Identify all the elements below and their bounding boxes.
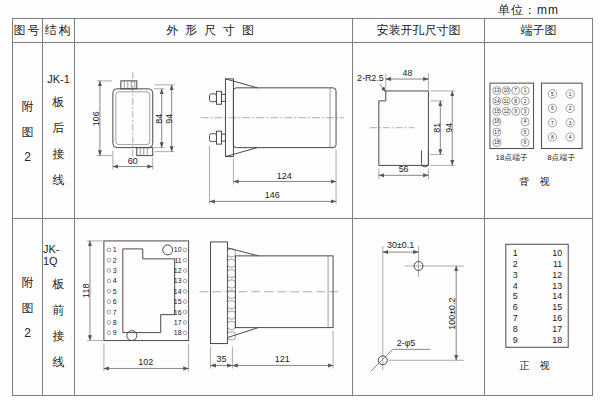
cutout-outline [370, 91, 429, 167]
dim-depth-total: 146 [265, 190, 280, 200]
pin-number: 1 [113, 247, 117, 254]
jk1q-mounting-hole-drawing: 30±0.1 100±0.2 2-φ5 [353, 219, 484, 394]
figure-cell-jk1q: 附 图 2 [13, 219, 43, 395]
pin-number: 11 [504, 99, 509, 104]
header-structure: 结构 [43, 19, 75, 43]
jk1-outline-drawing: 106 84 94 [75, 43, 352, 218]
bottom-hole: 2-φ5 [371, 339, 431, 372]
jk1-side-view [201, 79, 344, 157]
pin-number: 12 [504, 109, 510, 114]
top-hole [405, 247, 465, 278]
pin-number: 16 [174, 309, 182, 316]
dim-124: 124 [233, 150, 336, 185]
pin-number: 17 [552, 324, 562, 334]
dim-corner-radius: 2-R2.5 [357, 73, 386, 92]
pin-number: 6 [513, 303, 518, 313]
pin-number: 7 [113, 309, 117, 316]
pin-number: 7 [514, 88, 517, 93]
pin-number: 7 [551, 121, 554, 126]
structure-char: 后 [53, 120, 65, 137]
pin-number: 17 [494, 130, 500, 135]
dim-height-outer: 94 [164, 114, 174, 124]
dim-bottom-width: 56 [399, 164, 409, 174]
pin-number: 13 [494, 88, 500, 93]
view-label-front: 正 视 [519, 360, 553, 371]
structure-cell-jk1: JK-1 板 后 接 线 [43, 43, 75, 219]
dim-flange-depth: 35 [216, 355, 226, 365]
dim-height-total: 106 [91, 111, 101, 126]
dim-35: 35 [211, 347, 233, 369]
terminal-pin: 7 8 9 [512, 87, 520, 116]
dim-48: 48 [386, 68, 429, 90]
header-figure-number: 图号 [13, 19, 43, 43]
mounting-cell-jk1q: 30±0.1 100±0.2 2-φ5 [353, 219, 485, 395]
screw-terminal [210, 91, 226, 104]
pin-number: 4 [513, 281, 518, 291]
dim-height: 94 [444, 123, 454, 133]
pin-number: 12 [174, 267, 182, 274]
dim-146: 146 [210, 146, 337, 205]
pin-number: 3 [113, 267, 117, 274]
pin-number: 3 [569, 121, 572, 126]
header-terminal-diagram: 端子图 [485, 19, 593, 43]
figure-char: 2 [24, 150, 31, 164]
pin-number: 4 [113, 278, 117, 285]
dim-106: 106 [91, 81, 112, 156]
pin-number: 5 [524, 130, 527, 135]
structure-char: 板 [53, 276, 65, 293]
terminal-block-18: 13 14 15 16 17 18 10 11 12 [490, 83, 534, 148]
jk1-front-view [113, 72, 153, 164]
pin-number: 1 [524, 88, 527, 93]
pin-number: 2 [524, 99, 527, 104]
pin-number: 8 [514, 99, 517, 104]
pin-number: 2 [569, 106, 572, 111]
dim-depth-body: 124 [277, 171, 292, 181]
structure-char: 接 [53, 328, 65, 345]
dim-body-depth: 121 [275, 355, 290, 365]
view-label-back: 背 视 [519, 176, 553, 187]
dim-102: 102 [104, 344, 189, 372]
label-8-point: 8点端子 [547, 153, 575, 162]
pin-number: 14 [494, 99, 500, 104]
dim-vertical-spacing: 100±0.2 [447, 298, 457, 330]
figure-cell-jk1: 附 图 2 [13, 43, 43, 219]
pin-number: 8 [113, 319, 117, 326]
pin-number: 15 [494, 109, 500, 114]
outline-cell-jk1q: 1 2 3 4 5 6 7 8 9 10 [75, 219, 353, 395]
pin-number: 8 [551, 135, 554, 140]
pin-number: 16 [494, 119, 500, 124]
front-right-pins: 10 11 12 13 14 15 16 17 18 [174, 247, 187, 337]
terminal-cell-jk1q: 1 2 3 4 5 6 7 8 9 10 11 12 13 [485, 219, 593, 395]
pin-number: 12 [552, 270, 562, 280]
pin-number: 15 [174, 299, 182, 306]
header-outline-dimensions: 外形尺寸图 [75, 19, 353, 43]
pin-number: 17 [174, 319, 182, 326]
drawing-sheet: 单位：mm 图号 结构 外形尺寸图 安装开孔尺寸图 端子图 附 图 2 JK-1… [0, 0, 600, 400]
pin-number: 14 [552, 292, 562, 302]
structure-jk1q: JK-1Q 板 前 接 线 [43, 219, 74, 394]
mounting-hole [163, 245, 173, 255]
mounting-cell-jk1: 2-R2.5 48 81 [353, 43, 485, 219]
structure-char: 线 [53, 172, 65, 189]
pin-number: 10 [504, 88, 510, 93]
dim-horizontal-spacing: 30±0.1 [387, 240, 414, 250]
pin-number: 18 [494, 140, 500, 145]
pin-number: 4 [569, 135, 572, 140]
figure-char: 附 [22, 274, 34, 291]
bottom-terminal-block [137, 148, 153, 156]
dim-121: 121 [232, 331, 333, 369]
structure-char: 板 [53, 94, 65, 111]
dim-top-width: 48 [403, 68, 413, 78]
figure-char: 图 [22, 124, 34, 141]
terminal-list-left: 1 2 3 4 5 6 7 8 9 [513, 249, 518, 345]
dim-56: 56 [379, 164, 429, 179]
terminal-pin: 10 11 12 [502, 87, 510, 116]
dim-height-inner: 84 [154, 114, 164, 124]
figure-char: 附 [22, 98, 34, 115]
pin-number: 5 [113, 288, 117, 295]
pin-number: 16 [552, 313, 562, 323]
pin-number: 9 [513, 335, 518, 345]
pin-number: 9 [514, 109, 517, 114]
structure-jk1: JK-1 板 后 接 线 [43, 43, 74, 218]
structure-cell-jk1q: JK-1Q 板 前 接 线 [43, 219, 75, 395]
pin-number: 18 [174, 330, 182, 337]
figure-number-jk1q: 附 图 2 [13, 219, 42, 394]
figure-number-jk1: 附 图 2 [13, 43, 42, 218]
pin-number: 8 [513, 324, 518, 334]
pin-number: 6 [524, 140, 527, 145]
row-jk1: 附 图 2 JK-1 板 后 接 线 [13, 43, 593, 219]
dim-corner-radius-label: 2-R2.5 [357, 73, 384, 83]
dim-width: 102 [138, 358, 153, 368]
structure-char: 前 [53, 302, 65, 319]
figure-char: 图 [22, 300, 34, 317]
model-label: JK-1Q [43, 243, 74, 267]
pin-number: 10 [174, 247, 182, 254]
row-jk1q: 附 图 2 JK-1Q 板 前 接 线 [13, 219, 593, 395]
pin-number: 11 [174, 257, 181, 264]
dim-inner-height: 81 [432, 123, 442, 133]
dim-height: 118 [81, 284, 91, 298]
top-terminal-block [121, 81, 137, 89]
model-label: JK-1 [47, 73, 70, 85]
pin-number: 11 [553, 259, 562, 269]
terminal-pin: 5 6 7 8 [548, 90, 556, 141]
structure-char: 线 [53, 354, 65, 371]
pin-number: 3 [513, 270, 518, 280]
screw-terminal [210, 131, 226, 144]
pin-number: 6 [551, 106, 554, 111]
pin-number: 3 [524, 109, 527, 114]
jk1q-terminal-diagram: 1 2 3 4 5 6 7 8 9 10 11 12 13 [485, 219, 592, 394]
pin-number: 9 [113, 330, 117, 337]
header-mounting-hole-dimensions: 安装开孔尺寸图 [353, 19, 485, 43]
dim-30: 30±0.1 [383, 240, 419, 252]
pin-number: 5 [551, 92, 554, 97]
side-pin-row [227, 249, 235, 340]
spec-table: 图号 结构 外形尺寸图 安装开孔尺寸图 端子图 附 图 2 JK-1 板 后 接 [12, 18, 593, 396]
structure-char: 接 [53, 146, 65, 163]
unit-label: 单位：mm [498, 2, 559, 19]
pin-number: 7 [513, 313, 518, 323]
jk1q-side-view [200, 242, 342, 344]
label-18-point: 18点端子 [495, 153, 528, 162]
dim-width: 60 [128, 156, 138, 166]
pin-number: 2 [513, 259, 518, 269]
pin-number: 2 [113, 257, 117, 264]
pin-number: 5 [513, 292, 518, 302]
pin-number: 15 [552, 303, 562, 313]
terminal-list-right: 10 11 12 13 14 15 16 17 18 [552, 249, 562, 345]
dim-118: 118 [81, 241, 103, 341]
pin-number: 14 [174, 288, 182, 295]
jk1q-front-view: 1 2 3 4 5 6 7 8 9 10 [104, 241, 189, 341]
bottom-slot [421, 151, 428, 167]
outline-cell-jk1: 106 84 94 [75, 43, 353, 219]
dim-81: 81 [430, 101, 443, 155]
terminal-block-8: 5 6 7 8 1 2 3 4 [541, 83, 582, 148]
jk1-terminal-diagram: 13 14 15 16 17 18 10 11 12 [485, 43, 592, 218]
pin-number: 1 [569, 92, 572, 97]
terminal-pin: 1 2 3 4 5 6 [521, 87, 529, 147]
header-row: 图号 结构 外形尺寸图 安装开孔尺寸图 端子图 [13, 19, 593, 43]
pin-number: 6 [113, 299, 117, 306]
pin-number: 18 [552, 335, 562, 345]
terminal-pin: 1 2 3 4 [566, 90, 574, 141]
jk1q-outline-drawing: 1 2 3 4 5 6 7 8 9 10 [75, 219, 352, 394]
front-left-pins: 1 2 3 4 5 6 7 8 9 [107, 247, 117, 337]
pin-number: 1 [513, 249, 518, 259]
terminal-pin: 13 14 15 16 17 18 [493, 87, 501, 147]
pin-number: 13 [552, 281, 562, 291]
terminal-cell-jk1: 13 14 15 16 17 18 10 11 12 [485, 43, 593, 219]
figure-char: 2 [24, 326, 31, 340]
pin-number: 10 [552, 249, 562, 259]
jk1-mounting-hole-drawing: 2-R2.5 48 81 [353, 43, 484, 218]
pin-number: 13 [174, 278, 182, 285]
pin-number: 4 [524, 119, 527, 124]
dim-hole-diameter: 2-φ5 [397, 339, 416, 349]
